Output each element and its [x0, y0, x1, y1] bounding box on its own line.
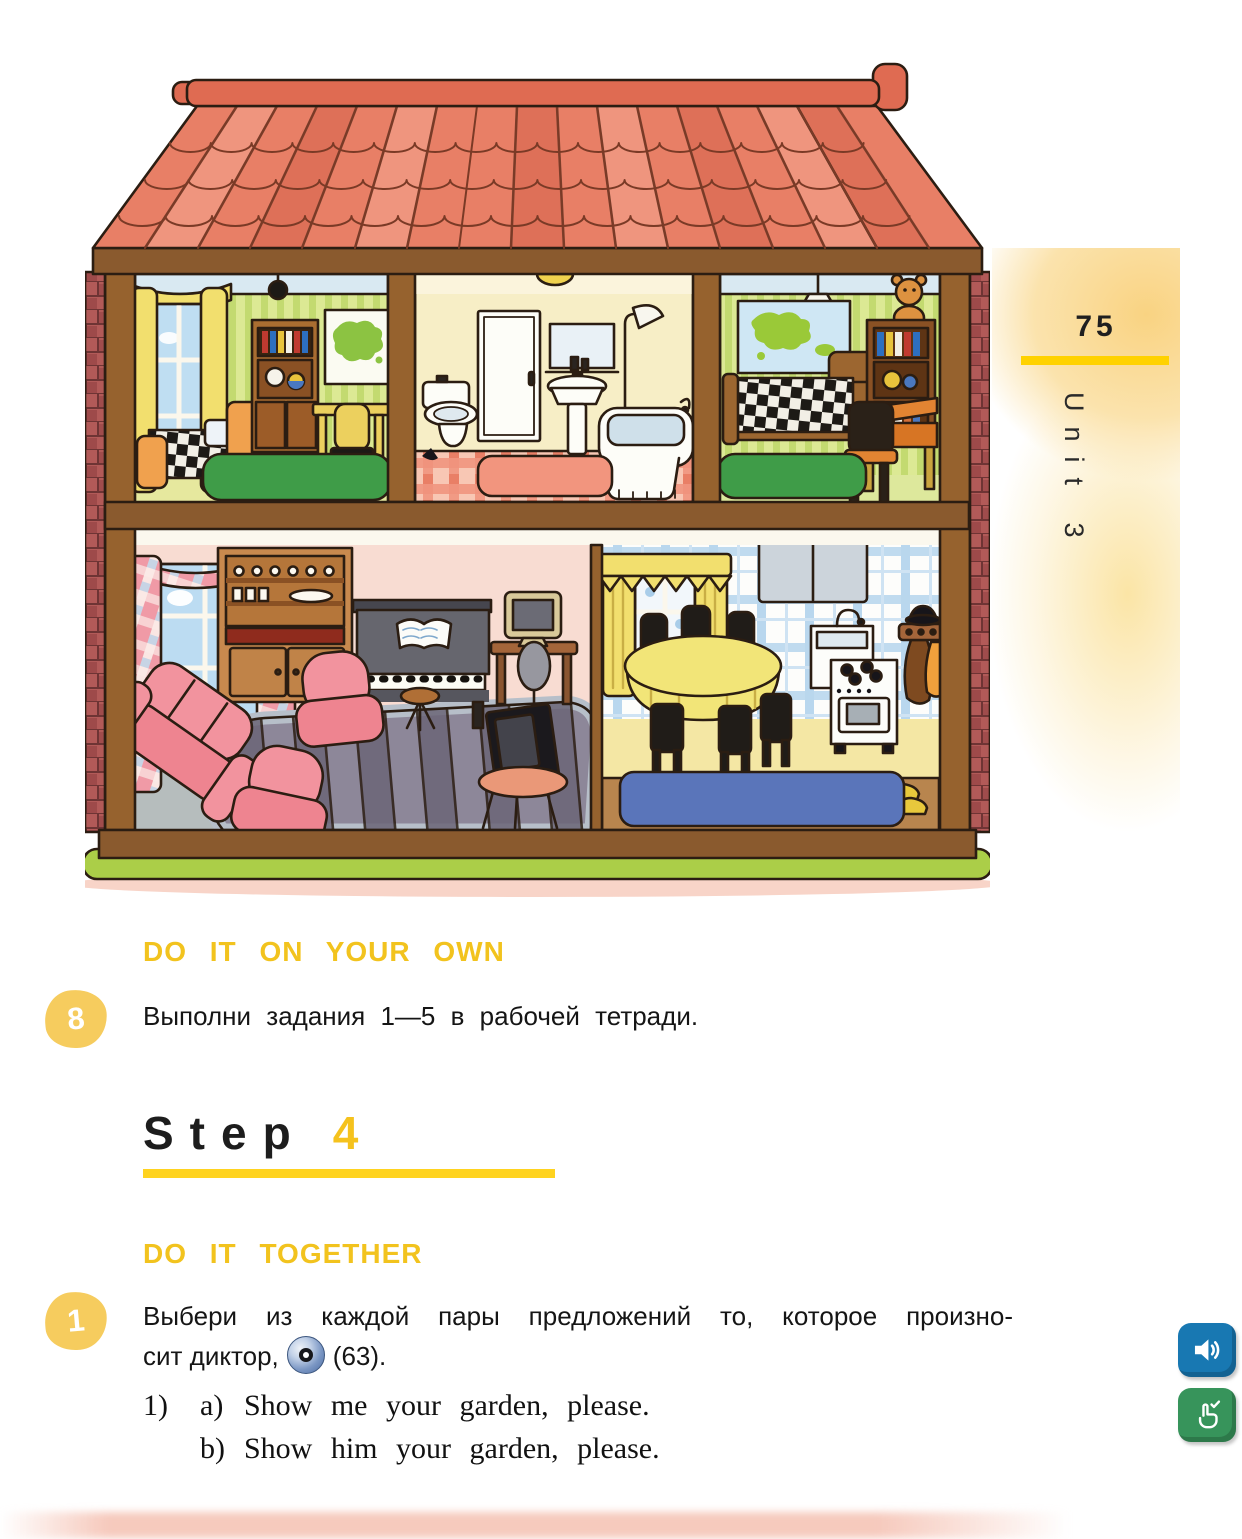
- tab-rule: [1021, 356, 1169, 365]
- item-number: 1): [143, 1384, 200, 1427]
- option-a-label: a): [200, 1384, 244, 1427]
- step-underline: [143, 1169, 555, 1178]
- brick-pier-left: [85, 272, 105, 832]
- floor-beam: [105, 502, 969, 529]
- step-heading: Step4: [143, 1106, 358, 1160]
- section-heading-together: DO IT TOGETHER: [143, 1238, 423, 1270]
- door: [478, 311, 540, 441]
- exercise-1-badge: 1: [43, 1289, 110, 1352]
- bath-rug: [478, 456, 612, 496]
- list-item: 1) a) Show me your garden, please.: [143, 1384, 1023, 1427]
- base-beam: [99, 830, 976, 858]
- exercise-8-badge: 8: [43, 987, 110, 1050]
- wall-map: [325, 310, 393, 384]
- choose-answer-button[interactable]: [1178, 1388, 1236, 1442]
- coat-rack: [899, 606, 946, 704]
- textbook-page: 75 Unit 3 DO IT ON YOUR OWN 8 Выполни за…: [0, 0, 1242, 1539]
- kitchen-dining: [599, 532, 946, 830]
- option-a-text: Show me your garden, please.: [244, 1384, 650, 1427]
- ridge-cap: [187, 80, 879, 106]
- eave-beam: [93, 248, 982, 274]
- rug-green: [203, 454, 391, 500]
- rug-blue: [620, 772, 904, 826]
- house-cutaway-illustration: [85, 58, 990, 903]
- exercise-1-line1: Выбери из каждой пары предложений то, ко…: [143, 1296, 1013, 1336]
- option-b-label: b): [200, 1427, 244, 1470]
- hand-pointer-check-icon: [1190, 1398, 1224, 1432]
- step-number: 4: [333, 1107, 359, 1159]
- exercise-1-items: 1) a) Show me your garden, please. b) Sh…: [143, 1384, 1023, 1470]
- exercise-1-line2: сит диктор,(63).: [143, 1336, 1013, 1376]
- rug-green: [718, 454, 866, 498]
- ceiling-lamp: [537, 274, 573, 285]
- cabinet: [252, 320, 318, 452]
- section-heading-own: DO IT ON YOUR OWN: [143, 936, 505, 968]
- page-number: 75: [1022, 310, 1170, 344]
- stove: [831, 660, 897, 753]
- audio-play-button[interactable]: [1178, 1323, 1236, 1377]
- exercise-1-line2-pre: сит диктор,: [143, 1341, 279, 1371]
- roof: [93, 64, 982, 274]
- option-b-text: Show him your garden, please.: [244, 1427, 660, 1470]
- brick-pier-right: [970, 272, 990, 832]
- cd-disc-icon: [287, 1336, 325, 1374]
- mirror-shelf: [546, 324, 618, 372]
- page-bottom-tint: [0, 1512, 1070, 1538]
- unit-label: Unit 3: [1058, 392, 1089, 622]
- list-item: b) Show him your garden, please.: [143, 1427, 1023, 1470]
- step-word: Step: [143, 1107, 307, 1159]
- bedroom-right: [718, 274, 940, 511]
- bathroom: [415, 274, 693, 502]
- speaker-icon: [1190, 1333, 1224, 1367]
- bedroom-left: [129, 274, 393, 502]
- exercise-8-text: Выполни задания 1—5 в рабочей тетради.: [143, 996, 1013, 1036]
- exercise-1-line2-post: (63).: [333, 1341, 386, 1371]
- living-room: [92, 545, 597, 861]
